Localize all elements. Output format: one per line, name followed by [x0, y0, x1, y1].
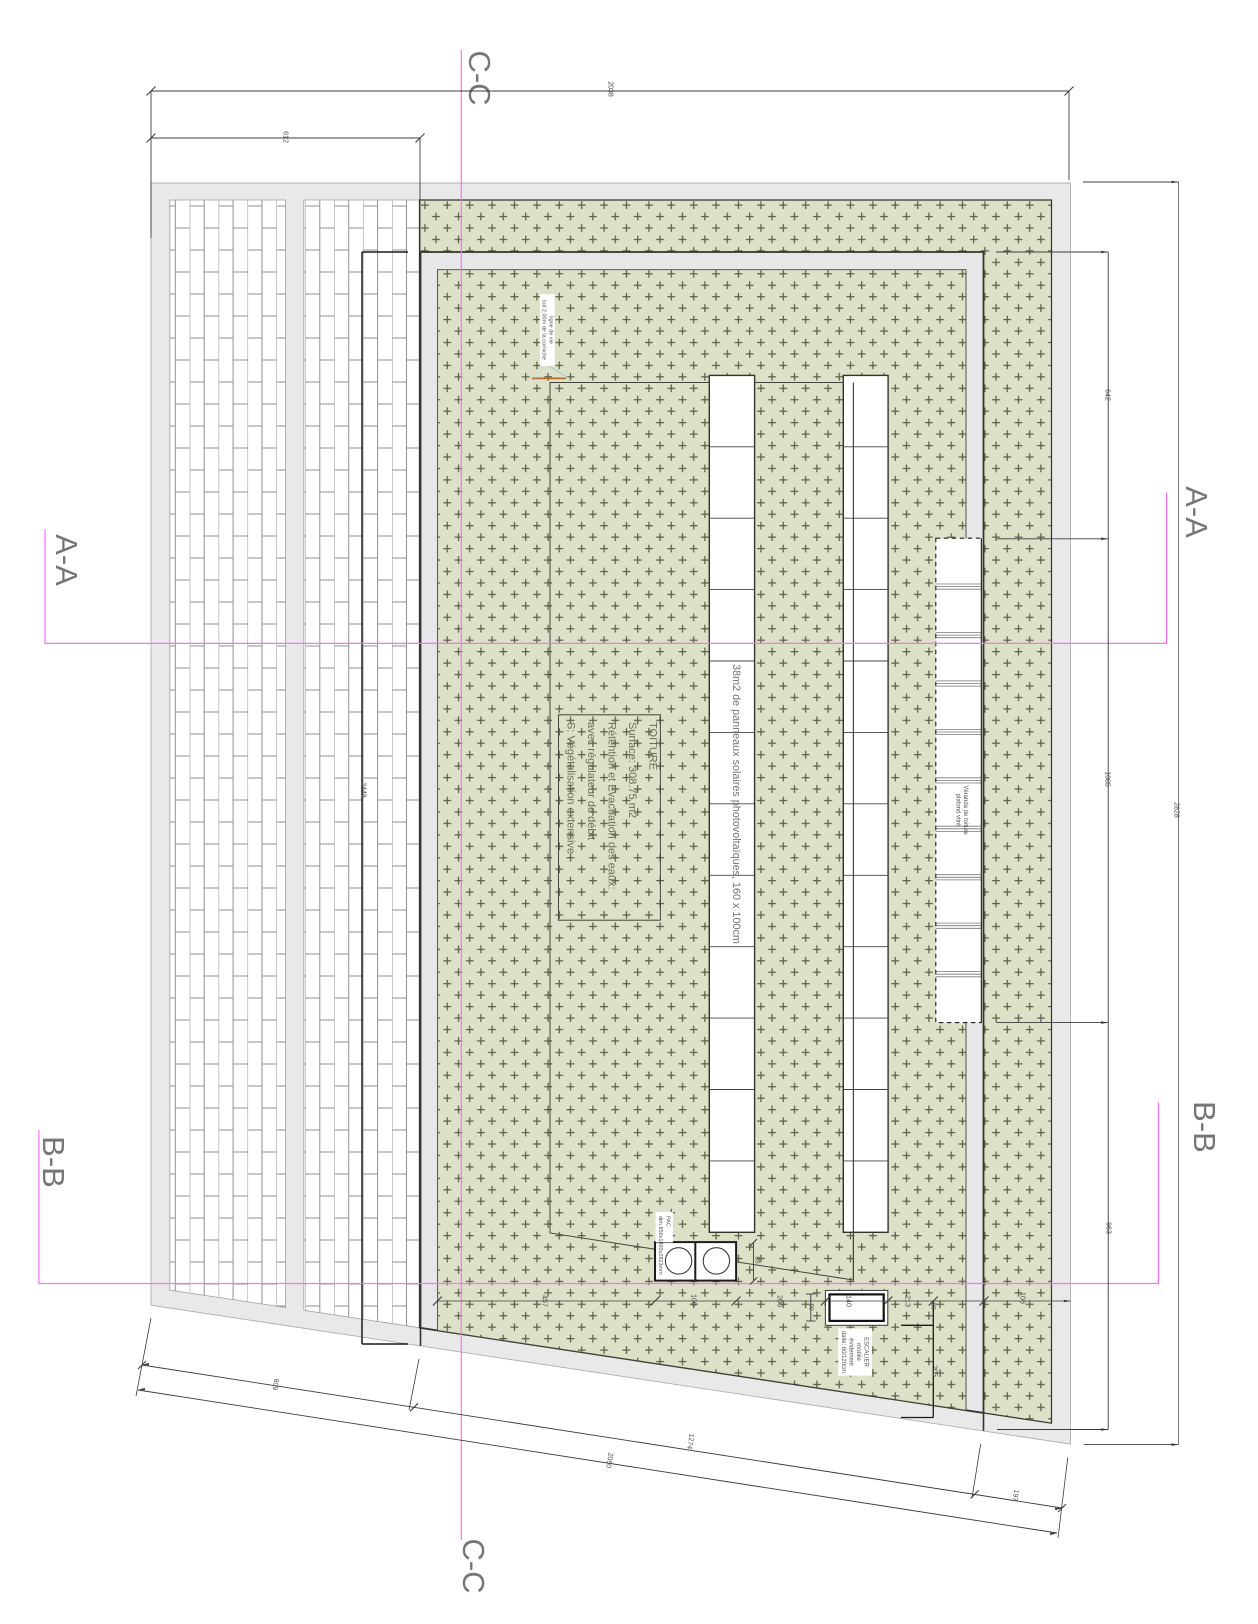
svg-text:200: 200 [776, 1295, 783, 1307]
svg-text:2828: 2828 [1173, 802, 1180, 818]
svg-text:PAC: PAC [665, 1216, 671, 1227]
svg-text:80: 80 [930, 1302, 937, 1310]
svg-text:B-B: B-B [1187, 1101, 1222, 1153]
svg-text:2038: 2038 [607, 81, 614, 97]
svg-text:612: 612 [282, 131, 289, 143]
svg-text:C-C: C-C [456, 1538, 491, 1593]
svg-text:205: 205 [931, 1365, 938, 1377]
svg-text:38m2 de panneaux solaires phot: 38m2 de panneaux solaires photovoltaïque… [730, 664, 742, 944]
svg-text:plafond vitré: plafond vitré [954, 794, 960, 827]
svg-text:ESCALIER: ESCALIER [862, 1337, 868, 1367]
svg-text:évidement: évidement [847, 1338, 853, 1366]
svg-text:457: 457 [541, 1295, 548, 1307]
svg-text:100: 100 [690, 1294, 697, 1306]
svg-text:dalle: 60/120cm: dalle: 60/120cm [840, 1331, 846, 1373]
svg-text:1085: 1085 [1104, 771, 1111, 787]
svg-text:85: 85 [754, 1256, 761, 1264]
svg-text:106: 106 [1019, 1292, 1026, 1304]
svg-text:2448: 2448 [360, 782, 367, 798]
svg-text:60: 60 [808, 1303, 815, 1311]
svg-text:963: 963 [1105, 1222, 1112, 1234]
svg-text:642: 642 [1104, 389, 1111, 401]
svg-text:B-B: B-B [36, 1136, 71, 1188]
svg-text:A-A: A-A [1179, 486, 1214, 538]
svg-text:C-C: C-C [462, 50, 497, 105]
svg-text:dim 850x1800x2823mm: dim 850x1800x2823mm [657, 1216, 663, 1275]
svg-text:ligne de vie: ligne de vie [548, 316, 554, 344]
svg-text:140: 140 [845, 1295, 852, 1307]
svg-text:213: 213 [904, 1295, 911, 1307]
svg-text:mobile: mobile [855, 1343, 861, 1361]
svg-text:A-A: A-A [49, 534, 84, 586]
svg-text:toit 2.00m de la corniche: toit 2.00m de la corniche [541, 300, 547, 360]
svg-text:Véranda de toiture: Véranda de toiture [962, 785, 968, 835]
